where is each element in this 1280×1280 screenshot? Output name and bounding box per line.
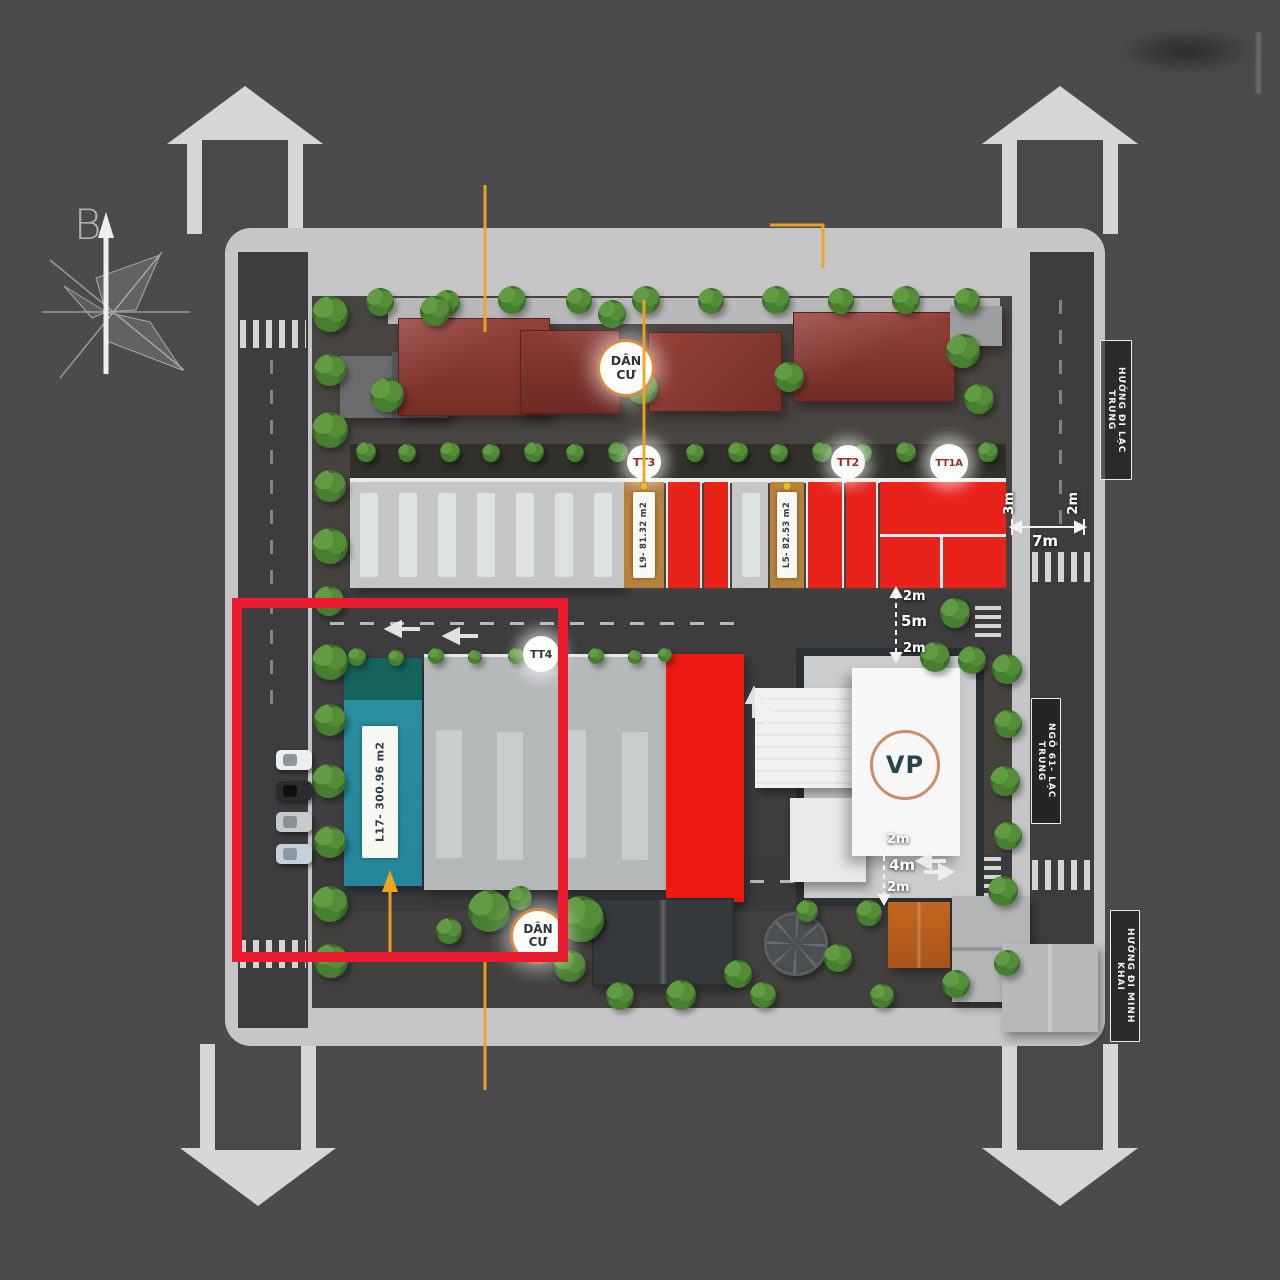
unit-label-strip: [399, 493, 417, 577]
tree: [992, 654, 1022, 684]
warehouse-label-strip: [622, 732, 648, 860]
tree: [312, 412, 348, 448]
unit-label-strip: [594, 493, 612, 577]
tree: [990, 766, 1020, 796]
crosswalk-right-road-bottom: [1032, 860, 1090, 890]
measure-2m-topright: 2m: [1066, 492, 1081, 515]
crosswalk-left-road-top: [240, 320, 306, 348]
tree: [366, 288, 394, 316]
unit-label-strip: [438, 493, 456, 577]
right-road-lane-dashes: [1059, 300, 1062, 530]
tree: [632, 286, 660, 314]
tree: [750, 982, 776, 1008]
unit-tag-l9-label: L9- 81.32 m2: [633, 492, 655, 578]
tree: [856, 900, 882, 926]
badge-tt1a-label: TT1A: [935, 458, 962, 469]
road-arrow-top-right-shaft: [1002, 140, 1118, 234]
round-tank: [764, 912, 828, 976]
tree: [312, 528, 348, 564]
tree: [724, 960, 752, 988]
unit-label-strip: [360, 493, 378, 577]
tree: [978, 442, 998, 462]
road-arrow-top-right-head: [982, 86, 1138, 144]
tree: [964, 384, 994, 414]
tree: [946, 334, 980, 368]
tree: [420, 296, 450, 326]
tree: [812, 442, 832, 462]
road-arrow-bottom-left-head: [180, 1148, 336, 1206]
unit-label-strip: [516, 493, 534, 577]
tree: [994, 710, 1022, 738]
road-arrow-bottom-left-shaft: [200, 1044, 316, 1150]
measure-mid-5m: 5m: [901, 612, 927, 630]
measure-bot-2m-a: 2m: [887, 832, 910, 847]
tree: [770, 444, 788, 462]
red-unit-3: [806, 482, 844, 588]
tree: [870, 984, 894, 1008]
tree: [824, 944, 852, 972]
red-roof-house-3: [793, 312, 955, 402]
crosswalk-middle-road: [975, 606, 1001, 640]
measure-bot-2m-b: 2m: [887, 880, 910, 895]
tree: [774, 362, 804, 392]
tree: [686, 444, 704, 462]
tree: [588, 648, 604, 664]
site-plan-canvas: L9- 81.32 m2 L5- 82.53 m2 DÂN CƯ TT3 TT2…: [0, 0, 1280, 1280]
tree: [482, 444, 500, 462]
road-label-huong-di-lac-trung: HƯỚNG ĐI LẠC TRUNG: [1100, 340, 1132, 480]
red-unit-4: [846, 482, 878, 588]
tree: [940, 598, 970, 628]
tree: [566, 444, 584, 462]
badge-tt2: TT2: [831, 445, 865, 479]
unit-label-strip: [742, 493, 760, 577]
tree: [796, 900, 818, 922]
badge-tt3-label: TT3: [633, 456, 655, 469]
unit-tag-l5-label: L5- 82.53 m2: [777, 492, 797, 578]
badge-dan-cu-top: DÂN CƯ: [600, 342, 652, 394]
tree: [628, 650, 642, 664]
measure-3m: 3m: [1002, 492, 1017, 515]
red-roof-house-2: [648, 332, 782, 412]
tree: [828, 288, 854, 314]
tree: [958, 646, 986, 674]
tree: [608, 442, 628, 462]
tree: [954, 288, 980, 314]
right-road: [1030, 252, 1094, 1028]
tree: [356, 442, 376, 462]
tree: [314, 470, 346, 502]
red-unit-1: [666, 482, 702, 588]
vp-white-slab-left: [755, 688, 867, 788]
tree: [942, 970, 970, 998]
compass-rose: [42, 212, 190, 378]
dark-gabled-house: [592, 898, 734, 986]
red-unit-2: [704, 482, 730, 588]
tree: [994, 950, 1020, 976]
measure-bot-4m: 4m: [889, 856, 915, 874]
road-label-ngo-61-lac-trung: NGÕ 61- LẠC TRUNG: [1031, 698, 1061, 824]
tree: [988, 876, 1018, 906]
tree: [892, 286, 920, 314]
tree: [606, 982, 634, 1010]
watermark-streak: [1256, 32, 1261, 94]
road-arrow-bottom-right-head: [982, 1148, 1138, 1206]
unit-label-strip: [555, 493, 573, 577]
road-label-huong-di-minh-khai: HƯỚNG ĐI MINH KHAI: [1110, 910, 1140, 1042]
tree: [994, 822, 1022, 850]
badge-vp: VP: [870, 730, 940, 800]
compass-north-label: B: [74, 200, 102, 249]
unit-label-strip: [477, 493, 495, 577]
measure-mid-2m-b: 2m: [903, 641, 926, 656]
badge-vp-label: VP: [886, 751, 924, 779]
tree: [566, 288, 592, 314]
badge-tt2-label: TT2: [837, 456, 859, 469]
tree: [698, 288, 724, 314]
badge-dan-cu-top-label: DÂN CƯ: [600, 354, 652, 382]
watermark-smudge: [1116, 28, 1258, 74]
tree: [440, 442, 460, 462]
tree: [598, 300, 626, 328]
tree: [314, 354, 346, 386]
highlight-red-box: [232, 598, 568, 962]
tree: [762, 286, 790, 314]
crosswalk-right-road-top: [1032, 552, 1090, 582]
measure-mid-2m-a: 2m: [903, 589, 926, 604]
red-block-divider-v: [940, 537, 943, 588]
tree: [524, 442, 544, 462]
tree: [728, 442, 748, 462]
tree: [398, 444, 416, 462]
red-building: [666, 654, 744, 902]
tree: [312, 296, 348, 332]
badge-tt1a: TT1A: [930, 444, 968, 482]
red-block-divider-h: [880, 534, 1006, 537]
tree: [370, 378, 404, 412]
tree: [896, 442, 916, 462]
road-arrow-top-left-head: [167, 86, 323, 144]
orange-roof-house: [888, 902, 950, 968]
road-arrow-bottom-right-shaft: [1002, 1044, 1118, 1150]
badge-tt3: TT3: [627, 445, 661, 479]
measure-7m: 7m: [1032, 532, 1058, 550]
road-arrow-top-left-shaft: [187, 140, 303, 234]
tree: [498, 286, 526, 314]
tree: [666, 980, 696, 1010]
tree: [658, 648, 672, 662]
